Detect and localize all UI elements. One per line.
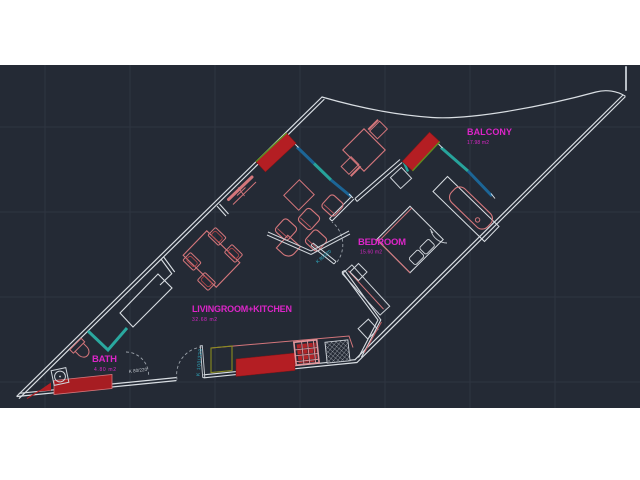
svg-text:BALCONY: BALCONY [467, 127, 512, 137]
svg-text:15.60 m2: 15.60 m2 [360, 250, 382, 256]
svg-text:BEDROOM: BEDROOM [358, 237, 406, 248]
svg-text:4.80 m2: 4.80 m2 [94, 367, 116, 373]
svg-text:BATH: BATH [92, 354, 117, 365]
svg-text:32.68 m2: 32.68 m2 [192, 317, 217, 323]
svg-text:LIVINGROOM+KITCHEN: LIVINGROOM+KITCHEN [192, 304, 292, 314]
svg-text:17.98 m2: 17.98 m2 [467, 140, 489, 146]
